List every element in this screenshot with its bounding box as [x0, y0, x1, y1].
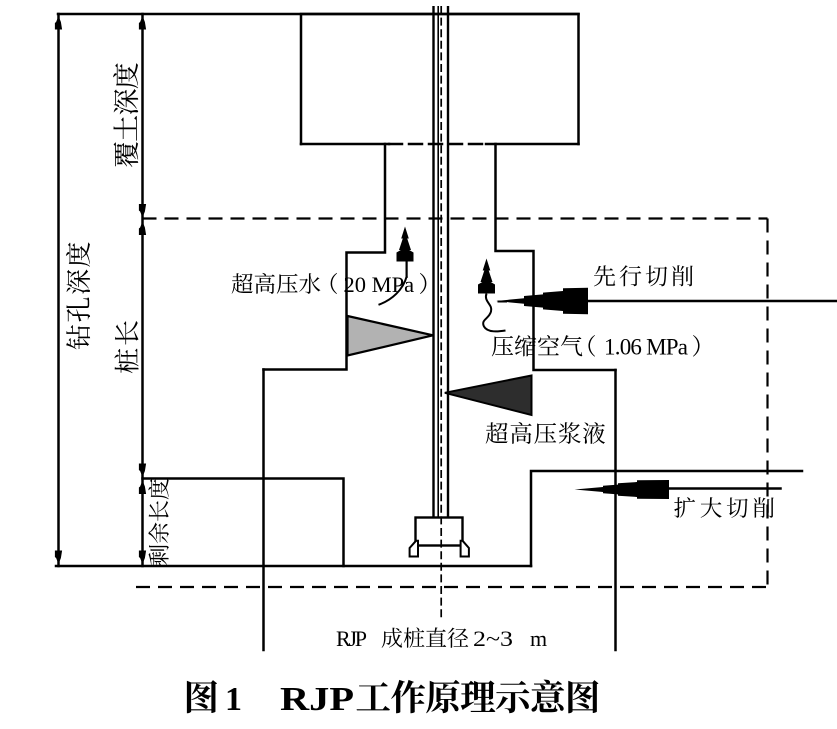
svg-text:RJP: RJP: [336, 626, 367, 651]
svg-text:2~3: 2~3: [473, 626, 513, 651]
svg-text:1: 1: [225, 681, 242, 718]
svg-text:m: m: [530, 626, 547, 651]
svg-text:RJP: RJP: [280, 681, 354, 718]
svg-text:20 MPa: 20 MPa: [344, 272, 415, 297]
svg-text:1.06 MPa: 1.06 MPa: [604, 335, 688, 360]
